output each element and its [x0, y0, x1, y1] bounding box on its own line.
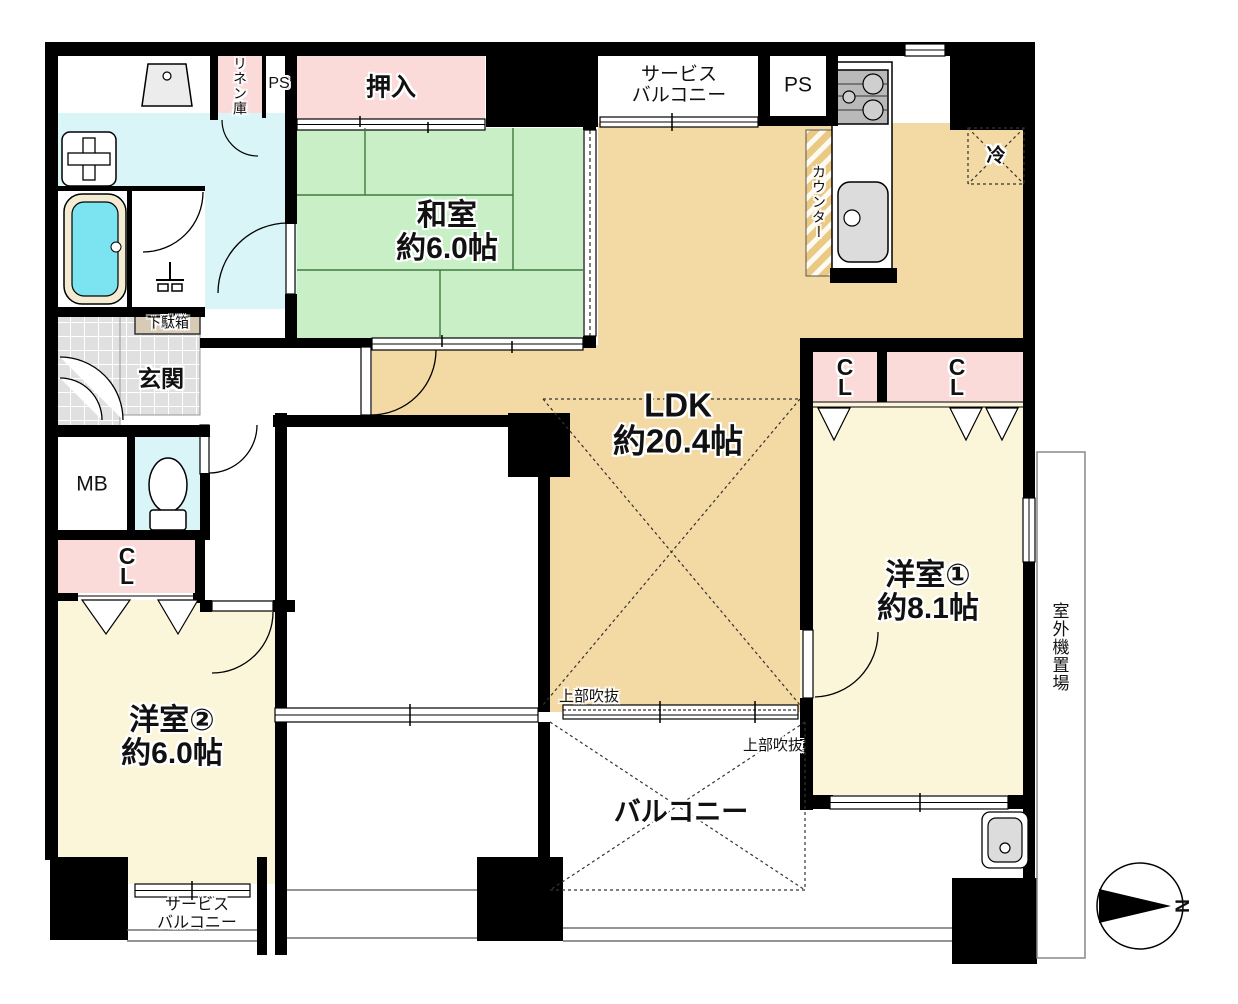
wall-fusuma-top-stub: [583, 118, 596, 130]
wall-void-right-lower: [538, 722, 550, 857]
wall-fusuma-bottom-stub: [583, 336, 596, 348]
window-western1-bottom: [830, 793, 1008, 812]
label-western1-name: 洋室①: [877, 559, 979, 592]
label-western1-size: 約8.1帖: [877, 592, 979, 625]
label-compass-north: N: [1170, 899, 1191, 913]
ldk-door-leaf: [361, 347, 371, 415]
window-oshiire-sliding: [297, 116, 485, 133]
void-room-upper-floor: [287, 425, 538, 708]
wall-linen-left: [210, 42, 218, 120]
wall-void-left: [275, 413, 287, 710]
label-ldk-name: LDK: [613, 388, 743, 424]
wall-w2-top-left: [200, 600, 212, 612]
label-oshiire: 押入: [366, 74, 416, 102]
toilet-tank-icon: [150, 510, 186, 530]
wall-block-bottomright: [952, 878, 1037, 964]
label-washitsu-name: 和室: [396, 199, 498, 232]
label-balcony: バルコニー: [614, 798, 748, 828]
label-genkan: 玄関: [138, 366, 184, 391]
wall-sb-right: [257, 857, 267, 955]
window-western1-right: [1023, 498, 1035, 562]
label-open-above-left: 上部吹抜: [559, 689, 619, 706]
bathtub-drain-icon: [111, 242, 121, 252]
label-sb-top-line2: バルコニー: [632, 86, 727, 107]
label-closet-hall: C L: [119, 546, 136, 586]
label-open-above-right: 上部吹抜: [743, 738, 803, 755]
floor-plan-drawing: [0, 0, 1238, 1004]
bath-faucet-icon: [156, 262, 184, 291]
bath-door-arc: [143, 192, 203, 252]
label-sb-bottom-line1: サービス: [157, 896, 237, 914]
toilet-bowl-icon: [149, 458, 187, 512]
label-washitsu-size: 約6.0帖: [396, 232, 498, 265]
stove-burner-1: [863, 74, 883, 94]
label-western2: 洋室② 約6.0帖: [121, 704, 223, 770]
outdoor-unit-area: [1037, 452, 1085, 958]
wall-block-topmid: [486, 42, 598, 127]
bath-area: [58, 186, 205, 308]
washroom-door-leaf: [286, 223, 295, 294]
wall-cl-bottom-left: [53, 593, 78, 601]
wall-block-bottomleft: [50, 857, 128, 940]
washroom-floor-b: [205, 113, 288, 309]
slop-sink-icon: [982, 812, 1028, 868]
label-closet-w1-right: C L: [949, 357, 966, 397]
washer-pan-cross-h: [68, 153, 110, 165]
label-meter-box: MB: [76, 472, 108, 495]
window-vent-top: [905, 44, 945, 56]
wall-left: [45, 42, 58, 860]
wall-block-topright: [950, 42, 1035, 130]
western1-door-leaf: [803, 630, 813, 698]
wall-cl-right: [195, 533, 205, 603]
washbasin-icon: [142, 64, 192, 106]
wall-corridor-top: [200, 338, 372, 348]
label-washitsu: 和室 約6.0帖: [396, 199, 498, 265]
label-cl-w1r-l: L: [949, 377, 966, 397]
label-ldk-size: 約20.4帖: [613, 424, 743, 460]
label-ps-right: PS: [784, 73, 812, 96]
wall-linen-ps-divider: [262, 56, 266, 118]
label-service-balcony-bottom: サービス バルコニー: [157, 896, 237, 931]
wall-mb-bottom: [53, 530, 210, 540]
stove-burner-2: [863, 100, 883, 120]
floor-plan: リネン庫 PS 押入 サービス バルコニー PS 冷 カウンター 和室 約6.0…: [0, 0, 1238, 1004]
wall-kitchen-stub: [830, 268, 897, 283]
wall-hall-washroom-upper: [285, 42, 297, 224]
label-counter: カウンター: [812, 165, 826, 240]
label-shoe-cabinet: 下駄箱: [147, 315, 189, 330]
wall-corridor-bottom: [273, 415, 513, 427]
label-ps-left: PS: [268, 75, 289, 93]
wall-w1-bottom-right: [1008, 795, 1023, 809]
label-refrigerator: 冷: [986, 147, 1005, 168]
western2-door-leaf: [212, 601, 273, 611]
label-service-balcony-top: サービス バルコニー: [632, 65, 727, 107]
label-western1: 洋室① 約8.1帖: [877, 559, 979, 625]
wall-block-bottommid: [477, 857, 563, 941]
stove-burner-3: [843, 91, 855, 103]
label-sb-top-line1: サービス: [632, 65, 727, 86]
wall-mb-toilet: [127, 428, 135, 530]
wall-ldk-left: [538, 477, 550, 712]
toilet-door-arc: [209, 425, 257, 473]
label-linen-closet: リネン庫: [233, 56, 247, 116]
label-cl-w1l-l: L: [837, 377, 854, 397]
wall-void-left-lower: [275, 722, 287, 955]
wall-w1-closet-divider: [877, 352, 887, 402]
wall-w1-left-upper: [800, 352, 813, 630]
window-fusuma-right: [584, 130, 596, 336]
kitchen: [832, 62, 892, 274]
window-washitsu-bottom-sliding: [372, 335, 583, 353]
washbasin-faucet-icon: [163, 72, 171, 80]
label-outdoor-unit: 室外機置場: [1051, 602, 1068, 692]
wall-w1-top: [800, 338, 1023, 352]
label-ldk: LDK 約20.4帖: [613, 388, 743, 461]
wall-w2-top-right: [273, 600, 295, 612]
void-room-lower-floor: [287, 722, 538, 857]
label-western2-size: 約6.0帖: [121, 737, 223, 770]
label-cl-hall-l: L: [119, 566, 136, 586]
wall-pillar-ldk: [508, 413, 570, 477]
label-western2-name: 洋室②: [121, 704, 223, 737]
wall-hall-toilet: [200, 473, 210, 535]
label-sb-bottom-line2: バルコニー: [157, 914, 237, 932]
kitchen-faucet-icon: [844, 210, 860, 226]
label-closet-w1-left: C L: [837, 357, 854, 397]
bath-mid-partition: [127, 190, 132, 308]
